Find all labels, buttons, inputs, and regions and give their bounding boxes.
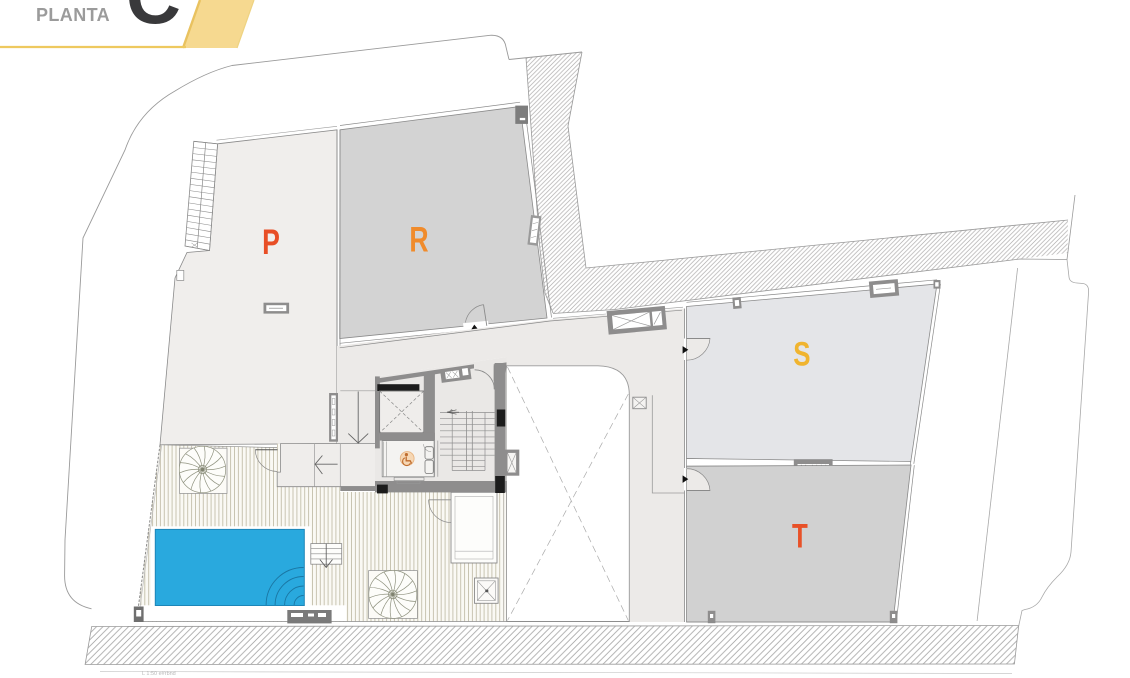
svg-text:S: S (793, 336, 810, 373)
svg-text:PLANTA: PLANTA (36, 5, 110, 25)
svg-text:P: P (262, 222, 280, 261)
svg-text:C: C (126, 0, 181, 41)
svg-text:T: T (792, 518, 808, 555)
svg-text:L 1:50 e#rbnd: L 1:50 e#rbnd (142, 671, 176, 677)
svg-text:R: R (409, 220, 428, 259)
